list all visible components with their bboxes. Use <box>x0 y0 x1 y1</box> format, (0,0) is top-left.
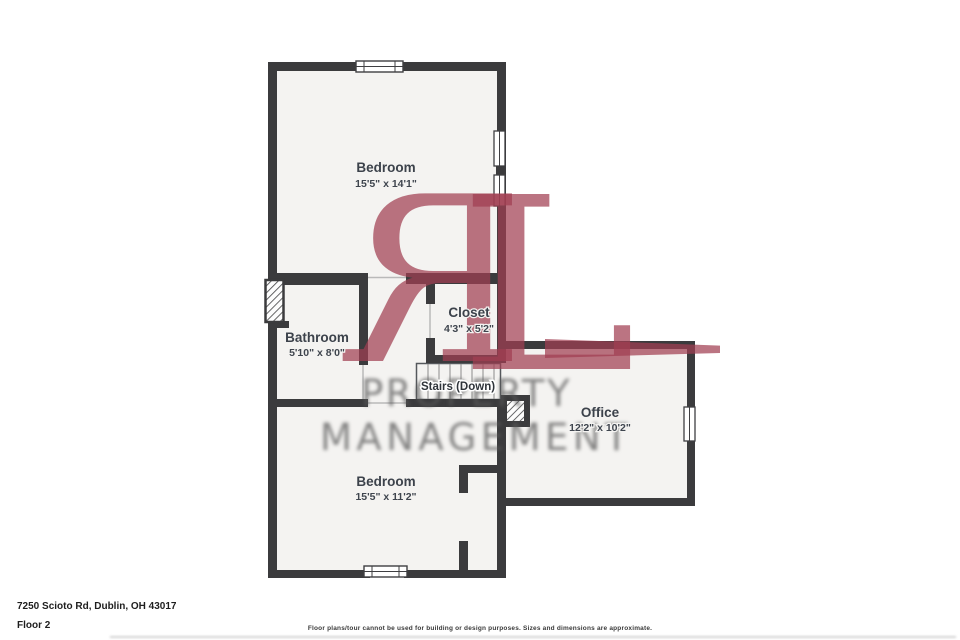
room-label-office: Office <box>581 405 620 420</box>
footer-divider <box>110 636 956 638</box>
room-label-bedroom-bottom: Bedroom <box>356 474 415 489</box>
room-label-stairs: Stairs (Down) <box>421 381 495 393</box>
address-text: 7250 Scioto Rd, Dublin, OH 43017 <box>17 601 177 612</box>
room-dims-bathroom: 5'10" x 8'0" <box>289 347 345 359</box>
room-labels: Bedroom 15'5" x 14'1" Bathroom 5'10" x 8… <box>0 0 960 640</box>
room-dims-closet: 4'3" x 5'2" <box>444 323 494 335</box>
room-label-closet: Closet <box>448 305 490 320</box>
room-label-bathroom: Bathroom <box>285 330 349 345</box>
room-dims-bedroom-bottom: 15'5" x 11'2" <box>355 491 416 503</box>
room-label-bedroom-top: Bedroom <box>356 160 415 175</box>
disclaimer-text: Floor plans/tour cannot be used for buil… <box>0 625 960 632</box>
room-dims-office: 12'2" x 10'2" <box>569 422 631 434</box>
floorplan-page: R L PROPERTY MANAGEMENT Bedroom 15'5" x … <box>0 0 960 640</box>
room-dims-bedroom-top: 15'5" x 14'1" <box>355 178 417 190</box>
